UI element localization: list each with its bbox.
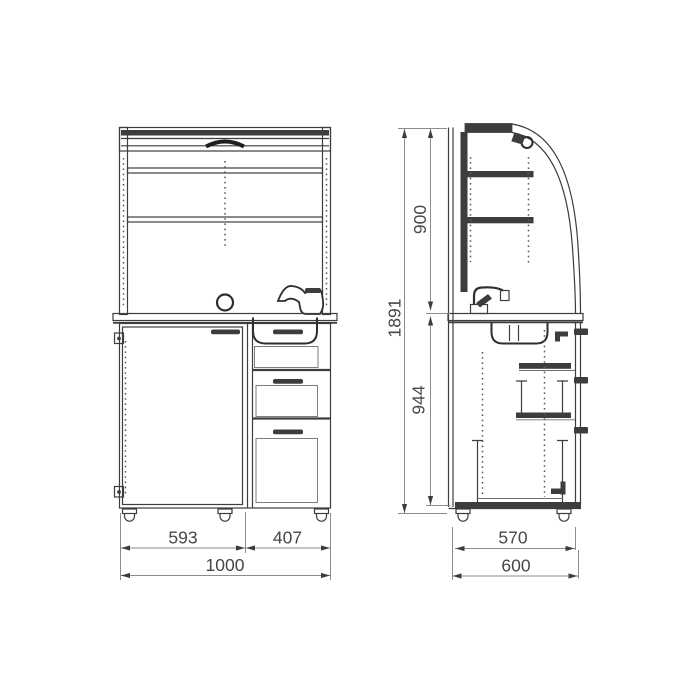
faucet-side <box>471 287 510 313</box>
front-view: 593 407 1000 <box>113 128 337 581</box>
foot-base <box>559 514 569 522</box>
arrowhead <box>321 573 330 578</box>
foot <box>557 509 571 521</box>
shutter-roll-block <box>511 133 525 145</box>
arrowhead <box>428 317 433 326</box>
dim-total-height: 1891 <box>385 299 405 338</box>
front-dimensions: 593 407 1000 <box>121 512 331 580</box>
base-cabinet-outline <box>120 324 331 509</box>
sink-bowl-side <box>492 323 548 344</box>
arrowhead <box>121 573 130 578</box>
drawer-slide-bracket <box>555 332 568 342</box>
dim-total-depth: 600 <box>501 556 530 576</box>
drawer-middle-handle <box>273 379 303 384</box>
side-shelf-lower <box>468 217 534 223</box>
foot-plate <box>315 509 329 514</box>
bottom-bracket-arm <box>561 482 566 495</box>
foot-plate <box>456 509 470 514</box>
foot-plate <box>557 509 571 514</box>
technical-drawing-canvas: 593 407 1000 <box>0 0 700 700</box>
arrowhead <box>428 302 433 311</box>
hutch <box>120 128 331 315</box>
foot-base <box>125 514 135 522</box>
door-panel <box>123 327 243 505</box>
hinge-pin <box>117 490 121 494</box>
countertop-side <box>448 314 583 323</box>
shutter-slat-band <box>121 130 329 136</box>
arrowhead <box>453 573 462 578</box>
arrowhead <box>321 545 330 550</box>
arrowhead <box>428 496 433 505</box>
foot-base <box>458 514 468 522</box>
side-shelf-upper <box>468 171 534 177</box>
drawer-rail-side-2 <box>516 413 571 419</box>
foot-base <box>220 514 230 522</box>
countertop-front <box>113 314 337 323</box>
drawer-middle <box>253 379 331 419</box>
front-feet <box>123 509 329 521</box>
top-bar <box>465 124 512 133</box>
tap-hole <box>217 295 233 311</box>
arrowhead <box>566 546 575 551</box>
drawer-top-inner <box>255 347 319 368</box>
countertop-side-edge <box>448 314 583 321</box>
handle-stub-bottom <box>574 427 588 434</box>
foot-plate <box>218 509 232 514</box>
faucet-lever-side <box>476 294 492 308</box>
foot <box>123 509 137 521</box>
arrowhead <box>569 573 578 578</box>
arrowhead <box>402 129 407 138</box>
hinge-pin <box>117 337 121 341</box>
foot <box>456 509 470 521</box>
drawer-bottom <box>256 430 318 503</box>
side-body <box>449 124 581 508</box>
countertop-front-edge <box>113 314 337 321</box>
dim-lower-height: 944 <box>409 385 429 414</box>
side-depth-dimensions: 570 600 <box>452 527 579 580</box>
arrowhead <box>121 545 130 550</box>
arrowhead <box>402 504 407 513</box>
foot-plate <box>123 509 137 514</box>
handle-stub-top <box>574 329 588 336</box>
drawer-bottom-handle <box>273 430 303 435</box>
side-vertical-dimensions: 1891 900 944 <box>385 129 451 514</box>
foot <box>218 509 232 521</box>
drawer-middle-section <box>516 381 575 420</box>
drawer-bottom-inner <box>256 439 318 503</box>
dim-total-width: 1000 <box>206 555 245 575</box>
side-feet <box>456 509 571 521</box>
cabinet-bottom-band <box>455 502 581 508</box>
shutter-side-track <box>461 132 468 292</box>
drawer-top <box>253 318 331 371</box>
dim-drawer-width: 407 <box>273 528 302 548</box>
arrowhead <box>236 545 245 550</box>
dim-upper-height: 900 <box>410 205 430 234</box>
drawer-top-handle <box>273 330 303 335</box>
faucet-lever-front <box>305 288 321 293</box>
cabinet-drawing: 593 407 1000 <box>0 0 700 700</box>
drawer-middle-inner <box>256 386 318 417</box>
dim-door-width: 593 <box>168 528 197 548</box>
arrowhead <box>246 545 255 550</box>
foot-base <box>317 514 327 522</box>
handle-stub-middle <box>574 377 588 384</box>
base-cabinet-side <box>449 323 589 509</box>
side-view: 1891 900 944 570 600 <box>385 124 589 581</box>
faucet-spout-tip <box>501 291 510 301</box>
arrowhead <box>456 546 465 551</box>
base-cabinet-front <box>115 318 331 509</box>
door-handle <box>211 330 240 335</box>
arrowhead <box>428 129 433 138</box>
dim-body-depth: 570 <box>498 528 527 548</box>
foot <box>315 509 329 521</box>
